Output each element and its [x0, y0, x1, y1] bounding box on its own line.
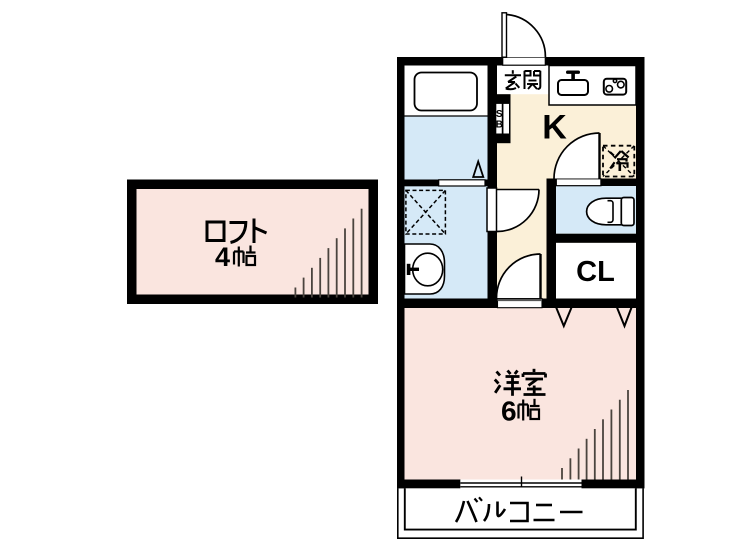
- svg-text:B: B: [496, 120, 503, 131]
- svg-text:S: S: [496, 109, 503, 120]
- svg-text:CL: CL: [576, 256, 615, 288]
- svg-text:6: 6: [501, 396, 517, 427]
- svg-text:4: 4: [215, 242, 230, 272]
- svg-text:K: K: [542, 108, 567, 146]
